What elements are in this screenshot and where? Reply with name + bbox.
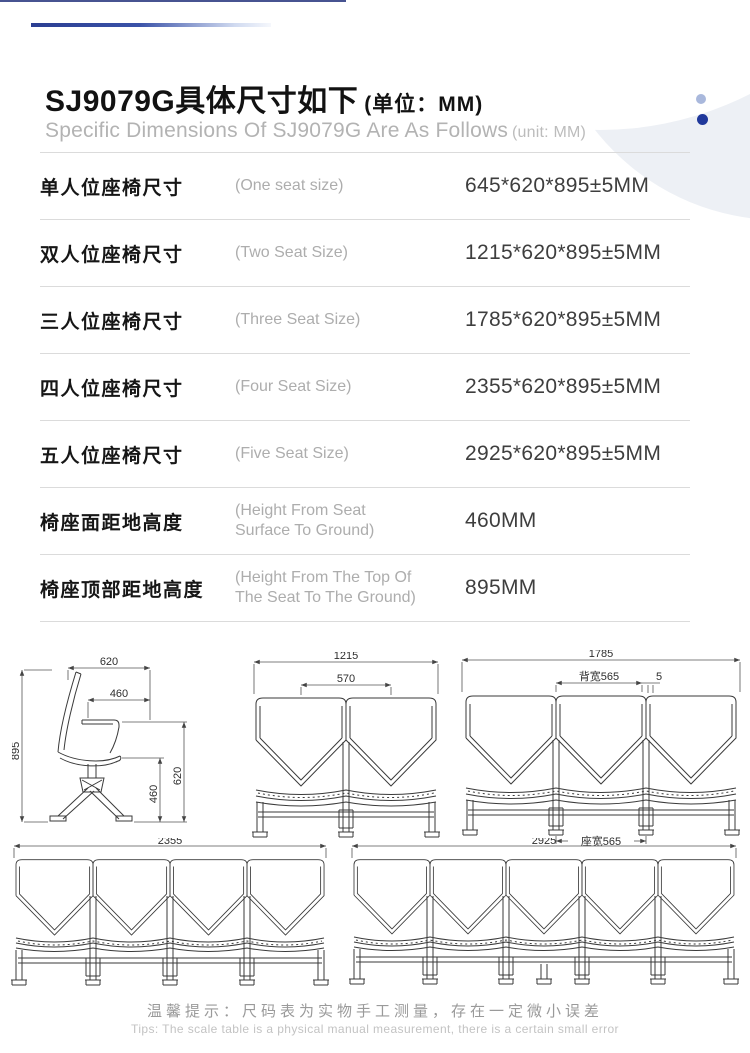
row-value: 2355*620*895±5MM [465,375,690,399]
table-row: 四人位座椅尺寸 (Four Seat Size) 2355*620*895±5M… [40,354,690,421]
dim-label: 2355 [158,838,182,847]
table-row: 双人位座椅尺寸 (Two Seat Size) 1215*620*895±5MM [40,220,690,287]
three-seat-outline [462,696,740,835]
table-row: 椅座面距地高度 (Height From Seat Surface To Gro… [40,488,690,555]
row-value: 895MM [465,576,690,600]
row-label-en: (Five Seat Size) [235,444,465,464]
footer-tip-en: Tips: The scale table is a physical manu… [0,1022,750,1036]
row-label-cn: 双人位座椅尺寸 [40,240,235,267]
row-label-cn: 单人位座椅尺寸 [40,173,235,200]
accent-dot-light [696,94,706,104]
row-value: 2925*620*895±5MM [465,442,690,466]
row-label-cn: 椅座顶部距地高度 [40,575,235,602]
row-label-en: (Height From The Top Of The Seat To The … [235,568,465,608]
accent-dot-dark [697,114,708,125]
row-label-cn: 三人位座椅尺寸 [40,307,235,334]
row-value: 645*620*895±5MM [465,174,690,198]
page-title-unit: (单位：MM) [364,93,483,116]
accent-underline [31,23,271,27]
dim-label: 5 [656,671,662,683]
five-seat-dimension-lines [352,846,736,858]
dim-label: 620 [100,656,118,668]
table-row: 三人位座椅尺寸 (Three Seat Size) 1785*620*895±5… [40,287,690,354]
row-label-en: (Two Seat Size) [235,243,465,263]
row-value: 1215*620*895±5MM [465,241,690,265]
two-seat-drawing: 1215 570 [246,652,456,842]
page-subtitle-en: Specific Dimensions Of SJ9079G Are As Fo… [45,119,508,142]
side-view-dimension-lines [22,668,187,822]
dim-label: 570 [337,673,355,685]
row-label-en: (One seat size) [235,176,465,196]
dim-label: 460 [148,785,160,803]
page-subtitle-unit: (unit: MM) [512,124,586,141]
five-seat-drawing: 2925 [344,838,740,990]
row-value: 460MM [465,509,690,533]
row-label-cn: 五人位座椅尺寸 [40,441,235,468]
dim-label: 460 [110,688,128,700]
table-row: 单人位座椅尺寸 (One seat size) 645*620*895±5MM [40,153,690,220]
row-label-en: (Height From Seat Surface To Ground) [235,501,465,541]
dim-label: 背宽565 [579,669,619,683]
four-seat-outline [11,860,329,985]
four-seat-dimension-lines [14,846,326,858]
table-row: 五人位座椅尺寸 (Five Seat Size) 2925*620*895±5M… [40,421,690,488]
row-label-cn: 四人位座椅尺寸 [40,374,235,401]
row-value: 1785*620*895±5MM [465,308,690,332]
spec-sheet-page: SJ9079G具体尺寸如下(单位：MM) Specific Dimensions… [0,0,750,1053]
side-view-drawing: 620 460 895 460 620 [12,656,194,838]
three-seat-dimension-lines [462,660,740,844]
dim-label: 1785 [589,650,613,660]
dim-label: 620 [172,767,184,785]
dimension-table: 单人位座椅尺寸 (One seat size) 645*620*895±5MM … [40,152,690,622]
page-title: SJ9079G具体尺寸如下(单位：MM) [45,76,483,120]
two-seat-outline [252,698,440,837]
page-subtitle: Specific Dimensions Of SJ9079G Are As Fo… [45,119,586,143]
table-row: 椅座顶部距地高度 (Height From The Top Of The Sea… [40,555,690,622]
page-title-cn: SJ9079G具体尺寸如下 [45,85,358,118]
top-border-line [0,0,346,2]
footer-tip-cn: 温馨提示：尺码表为实物手工测量，存在一定微小误差 [0,1000,750,1021]
row-label-en: (Four Seat Size) [235,377,465,397]
dim-label: 2925 [532,838,556,847]
five-seat-outline [349,860,739,984]
dim-label: 895 [12,742,22,760]
three-seat-drawing: 背宽565 5 1785 座宽565 [456,650,748,846]
four-seat-drawing: 2355 [6,838,344,990]
row-label-en: (Three Seat Size) [235,310,465,330]
row-label-cn: 椅座面距地高度 [40,508,235,535]
dim-label: 1215 [334,652,358,662]
